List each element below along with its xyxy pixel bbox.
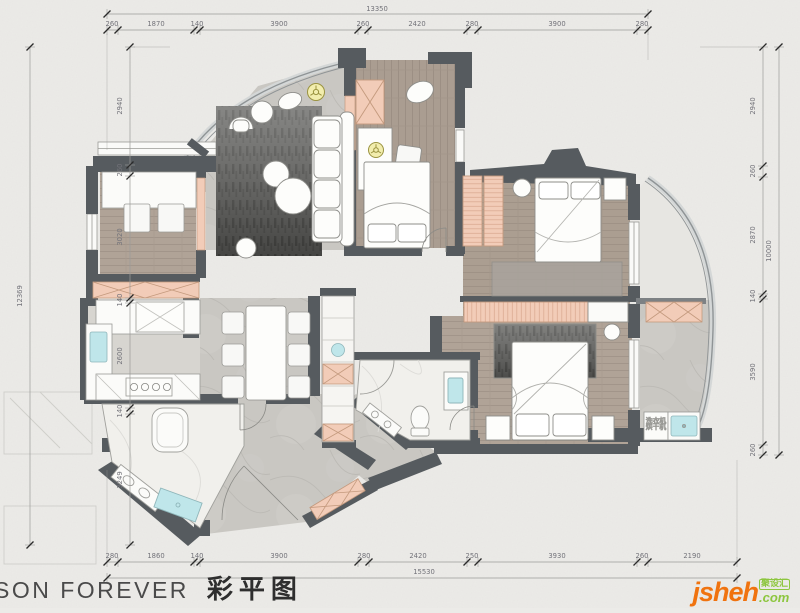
dim-label: 2190 xyxy=(683,552,700,560)
toilet xyxy=(411,406,429,436)
ceiling-fan xyxy=(369,143,384,158)
closet-cabinet-white xyxy=(588,302,628,322)
dim-label: 260 xyxy=(749,165,757,178)
dim-label: 3900 xyxy=(270,552,287,560)
dim-label: 2940 xyxy=(749,97,757,114)
nightstand xyxy=(486,416,510,440)
dim-label: 260 xyxy=(357,20,370,28)
sofa-cushion xyxy=(314,120,340,148)
nightstand-round xyxy=(513,179,531,197)
dim-label: 140 xyxy=(191,552,204,560)
title-bar: SON FOREVER 彩平图 xyxy=(0,569,303,606)
laundry-cabinet-label: 烘干机 xyxy=(646,422,667,431)
logo-tld: .com xyxy=(759,591,789,604)
dim-label: 250 xyxy=(466,552,479,560)
nightstand xyxy=(592,416,614,440)
logo-wordmark: jsheh xyxy=(692,579,758,606)
dim-label: 15530 xyxy=(413,568,435,576)
dim-label: 2420 xyxy=(408,20,425,28)
dim-label: 260 xyxy=(106,20,119,28)
dim-label: 260 xyxy=(749,444,757,457)
pink-cabinet-row xyxy=(93,282,199,298)
pillow xyxy=(368,224,396,242)
dim-label: 2420 xyxy=(409,552,426,560)
dim-label: 2600 xyxy=(116,347,124,364)
dim-label: 3249 xyxy=(116,471,124,488)
dim-label: 140 xyxy=(749,290,757,303)
bedroom3-rug xyxy=(492,262,622,296)
stool xyxy=(236,238,256,258)
vanity-sink xyxy=(448,378,463,403)
coffee-table xyxy=(275,178,311,214)
dim-label: 140 xyxy=(116,294,124,307)
side-table xyxy=(251,101,273,123)
brand-title: SON FOREVER xyxy=(0,577,189,604)
study-chair xyxy=(158,204,184,232)
dining-table xyxy=(246,306,286,400)
kitchen-stove xyxy=(126,378,172,396)
dim-label: 3930 xyxy=(548,552,565,560)
dim-label: 13350 xyxy=(366,5,388,13)
room-dining xyxy=(222,306,310,400)
logo-badge: 聚设汇 xyxy=(759,579,790,590)
ceiling-fan xyxy=(308,84,325,101)
pillow xyxy=(553,414,586,436)
dim-label: 3590 xyxy=(749,363,757,380)
dim-label: 280 xyxy=(636,20,649,28)
wardrobe-pink xyxy=(356,80,384,124)
dim-label: 1870 xyxy=(147,20,164,28)
nightstand xyxy=(604,178,626,200)
dim-label: 3900 xyxy=(548,20,565,28)
dim-label: 280 xyxy=(358,552,371,560)
sofa-cushion xyxy=(314,210,340,238)
site-logo[interactable]: jsheh 聚设汇 .com xyxy=(692,579,790,606)
closet-row xyxy=(464,302,588,322)
study-chair xyxy=(124,204,150,232)
page-title: 彩平图 xyxy=(207,569,303,606)
pillow xyxy=(398,224,426,242)
dim-label: 10000 xyxy=(765,240,773,262)
floorplan-svg: 洗衣机 烘干机 13350 260 1870 140 3900 260 2420… xyxy=(0,0,800,608)
dim-label: 12369 xyxy=(16,285,24,307)
dim-label: 280 xyxy=(106,552,119,560)
dim-label: 140 xyxy=(191,20,204,28)
dim-label: 140 xyxy=(116,405,124,418)
stool xyxy=(604,324,620,340)
dim-label: 3900 xyxy=(270,20,287,28)
sofa-cushion xyxy=(314,150,340,178)
dim-label: 260 xyxy=(636,552,649,560)
dim-label: 280 xyxy=(466,20,479,28)
dim-label: 1860 xyxy=(147,552,164,560)
bar-sink xyxy=(332,344,345,357)
dim-label: 2940 xyxy=(116,97,124,114)
kitchen-sink xyxy=(90,332,107,362)
pillow xyxy=(539,182,568,199)
dim-label: 2870 xyxy=(749,226,757,243)
dim-label: 3020 xyxy=(116,228,124,245)
floorplan-canvas: 洗衣机 烘干机 13350 260 1870 140 3900 260 2420… xyxy=(0,0,800,608)
dim-label: 260 xyxy=(116,164,124,177)
pillow xyxy=(516,414,549,436)
sofa-cushion xyxy=(314,180,340,208)
